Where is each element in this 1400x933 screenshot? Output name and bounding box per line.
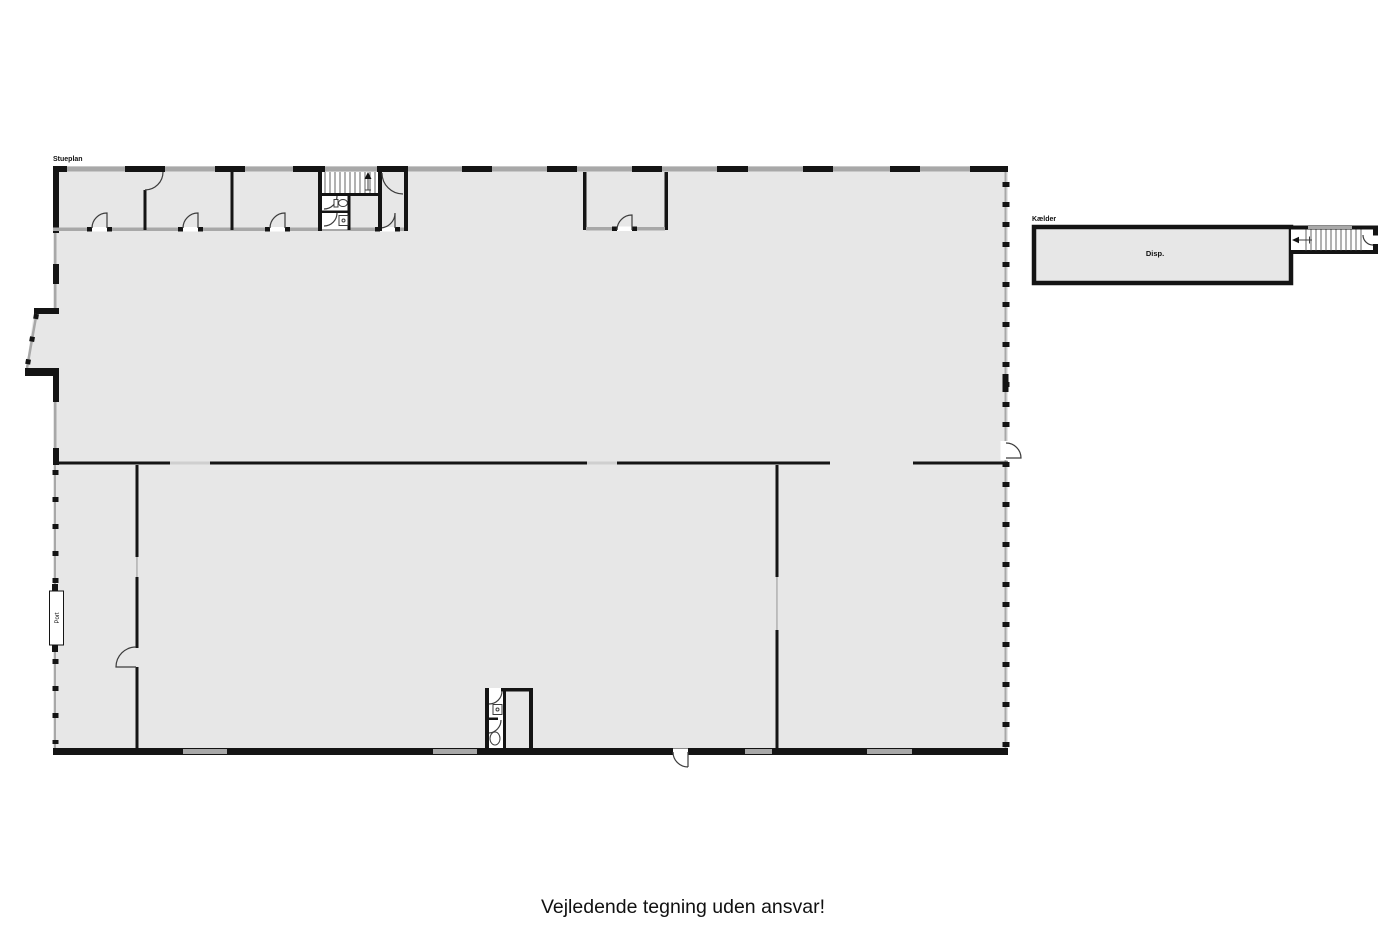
floor-plan-canvas: Stueplan xyxy=(0,0,1400,933)
sink-icon xyxy=(339,216,348,226)
stueplan-plan: Stueplan xyxy=(25,156,1021,767)
top-wall xyxy=(53,166,1008,172)
toilet-icon xyxy=(490,732,500,745)
office-divider-1 xyxy=(144,190,147,230)
kaelder-title: Kælder xyxy=(1032,216,1056,223)
bottom-wall xyxy=(53,748,1008,767)
kaelder-room-label: Disp. xyxy=(1146,249,1164,258)
bay-bottom-jog xyxy=(25,368,59,376)
port-label: Port xyxy=(55,612,61,623)
bay-top-jog xyxy=(34,308,59,314)
disclaimer-text: Vejledende tegning uden ansvar! xyxy=(0,896,1366,919)
kaelder-staircase xyxy=(1291,226,1378,255)
floorplan-document: Stueplan xyxy=(0,0,1400,933)
stueplan-floor xyxy=(25,166,1008,755)
sink-icon xyxy=(493,705,502,715)
kaelder-plan: Kælder Disp. xyxy=(1032,216,1378,283)
office-divider-2 xyxy=(231,172,234,230)
toilet-icon xyxy=(334,200,348,208)
stueplan-title: Stueplan xyxy=(53,156,83,163)
port-door: Port xyxy=(50,584,64,652)
